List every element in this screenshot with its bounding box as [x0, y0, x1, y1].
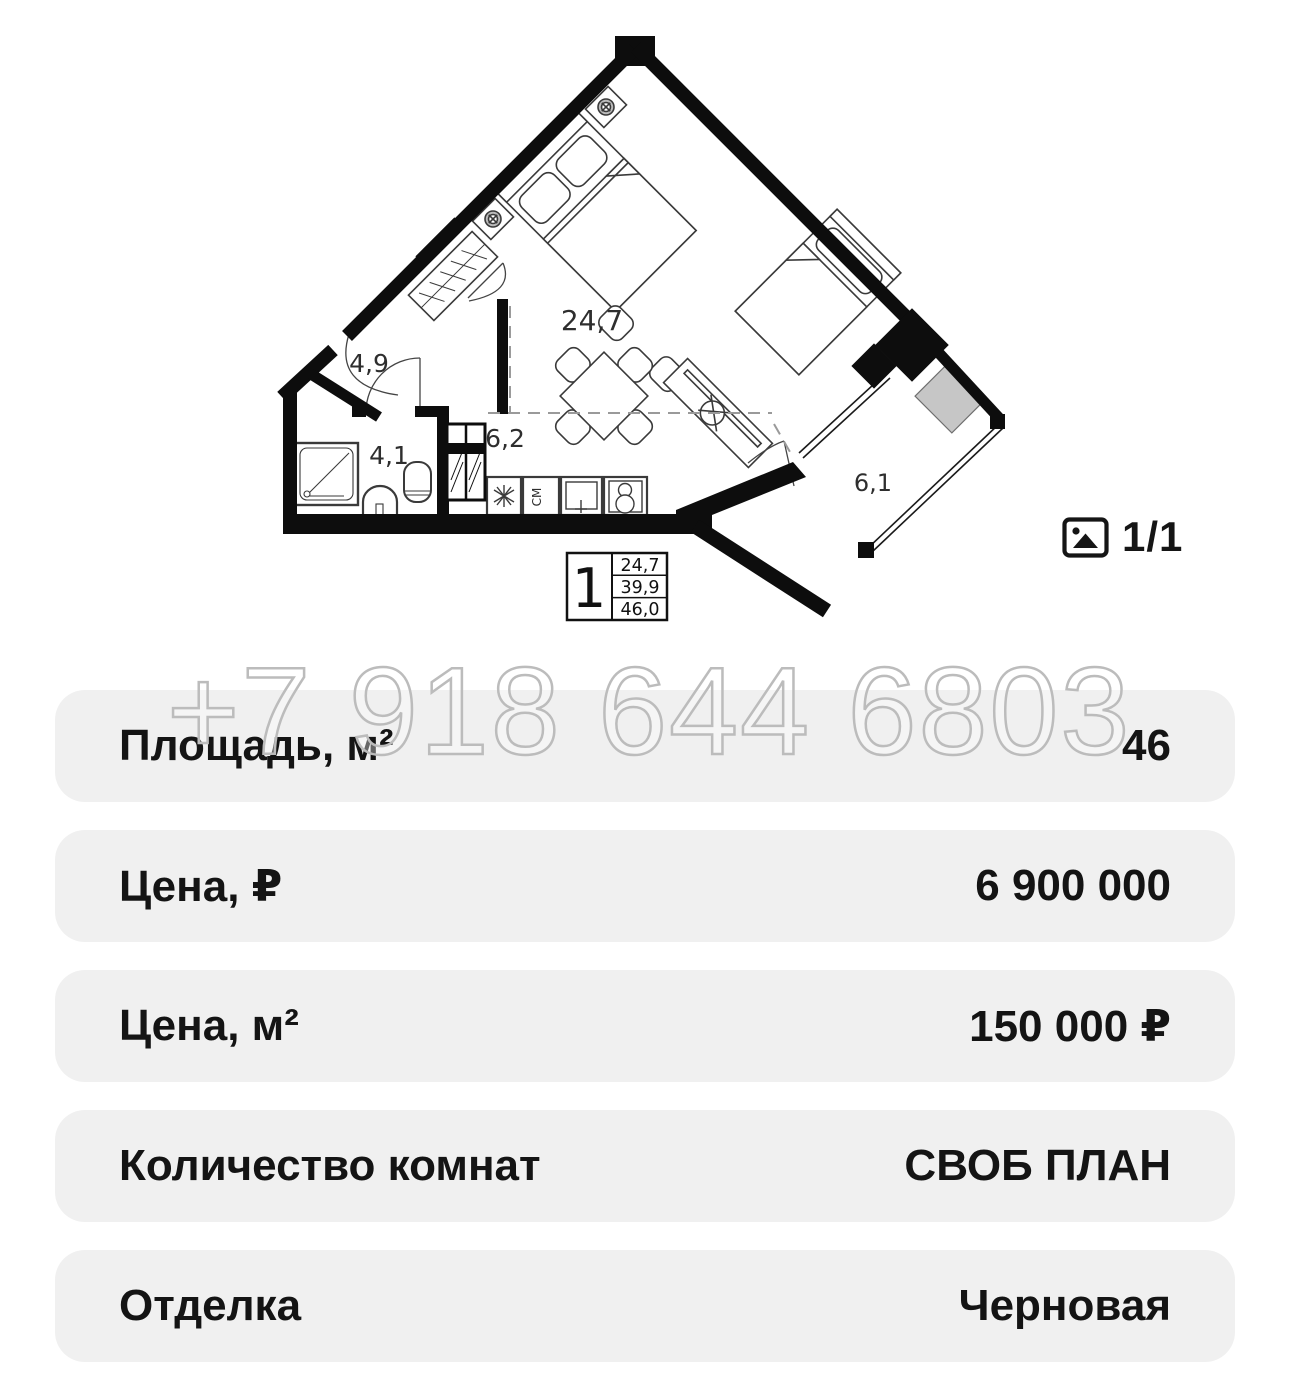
photo-icon — [1062, 517, 1109, 558]
legend-area-no-balcony: 39,9 — [621, 578, 660, 598]
walls — [282, 36, 1005, 611]
gallery-counter[interactable]: 1/1 — [1062, 513, 1183, 561]
row-room-count-value: СВОБ ПЛАН — [904, 1141, 1171, 1191]
row-price: Цена, ₽ 6 900 000 — [55, 830, 1235, 942]
row-finishing-label: Отделка — [119, 1281, 301, 1331]
stove-icon — [609, 481, 642, 513]
double-bed — [498, 113, 696, 311]
wardrobe — [408, 231, 497, 320]
floorplan-svg: СМ — [0, 0, 1290, 660]
kitchen-sink-icon — [566, 482, 597, 513]
room-label-living: 24,7 — [561, 304, 623, 337]
row-area-value: 46 — [1122, 721, 1171, 771]
row-price-per-m2: Цена, м² 150 000 ₽ — [55, 970, 1235, 1082]
kitchen-counter — [487, 477, 647, 515]
room-label-balcony: 6,1 — [854, 469, 892, 497]
row-area-label: Площадь, м² — [119, 721, 394, 771]
room-label-kitchen: 6,2 — [485, 424, 525, 453]
row-room-count: Количество комнат СВОБ ПЛАН — [55, 1110, 1235, 1222]
row-finishing: Отделка Черновая — [55, 1250, 1235, 1362]
washer-label: СМ — [530, 488, 544, 507]
legend-living-area: 24,7 — [621, 556, 660, 576]
floorplan-image: СМ — [0, 0, 1290, 660]
shower — [295, 443, 358, 505]
row-price-per-m2-value: 150 000 ₽ — [969, 1001, 1171, 1052]
bathroom-sink — [363, 486, 397, 516]
photo-count-label: 1/1 — [1122, 513, 1183, 561]
legend-total-area: 46,0 — [621, 600, 660, 620]
legend-room-count: 1 — [572, 557, 606, 620]
row-area: Площадь, м² 46 — [55, 690, 1235, 802]
room-label-hall: 4,9 — [349, 349, 389, 378]
vent-shaft — [447, 424, 485, 500]
row-price-per-m2-label: Цена, м² — [119, 1001, 299, 1051]
room-label-bathroom: 4,1 — [369, 441, 409, 470]
row-price-label: Цена, ₽ — [119, 861, 282, 912]
row-room-count-label: Количество комнат — [119, 1141, 541, 1191]
balcony-cabinet — [915, 365, 983, 433]
row-finishing-value: Черновая — [959, 1281, 1171, 1331]
row-price-value: 6 900 000 — [975, 861, 1171, 911]
